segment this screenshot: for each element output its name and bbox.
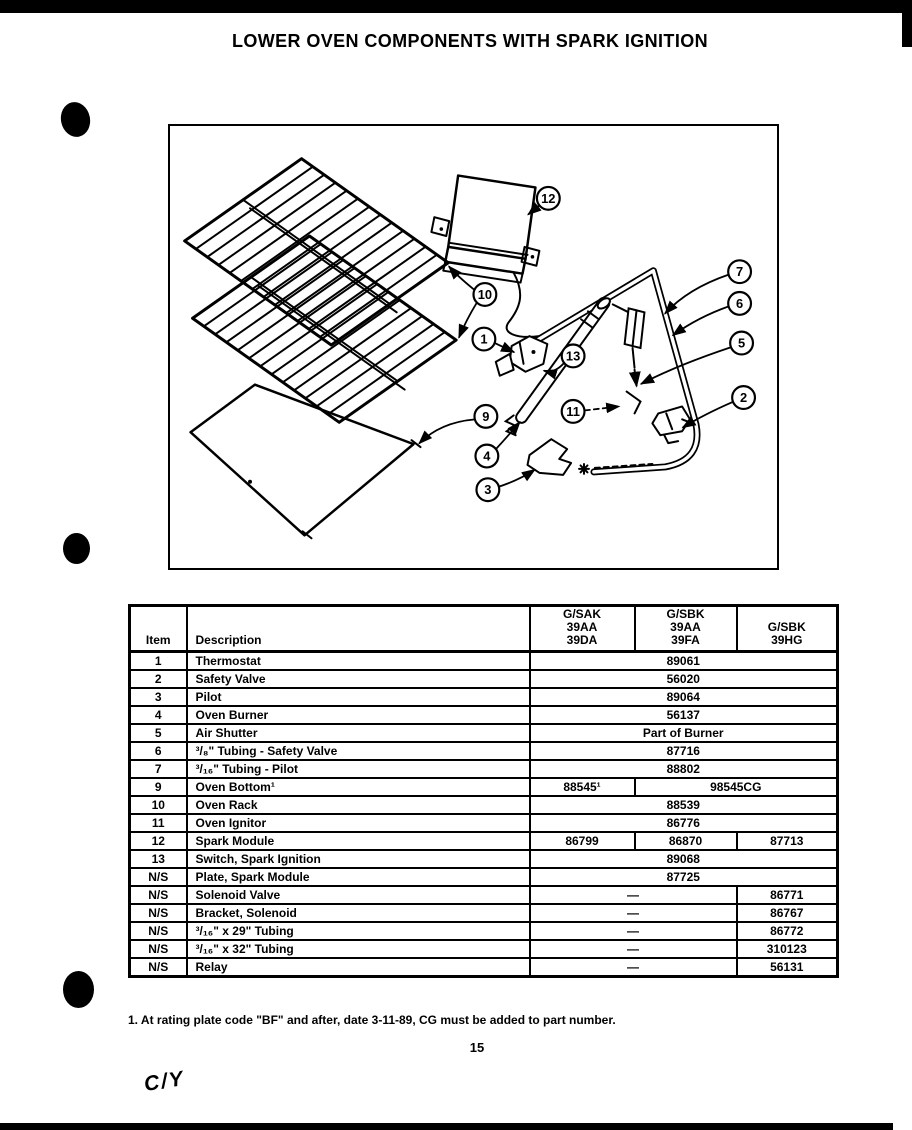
scan-edge-mark — [902, 11, 912, 47]
part-number-cell: 87713 — [737, 832, 838, 850]
table-row: N/S³/₁₆" x 29" Tubing—86772 — [130, 922, 838, 940]
table-row: N/SSolenoid Valve—86771 — [130, 886, 838, 904]
description-cell: Pilot — [187, 688, 530, 706]
description-cell: Spark Module — [187, 832, 530, 850]
punch-hole — [63, 533, 90, 564]
item-cell: N/S — [130, 958, 187, 977]
description-cell: ³/₁₆" Tubing - Pilot — [187, 760, 530, 778]
item-cell: 3 — [130, 688, 187, 706]
table-row: N/SPlate, Spark Module87725 — [130, 868, 838, 886]
table-row: 11Oven Ignitor86776 — [130, 814, 838, 832]
table-row: N/S³/₁₆" x 32" Tubing—310123 — [130, 940, 838, 958]
svg-text:1: 1 — [480, 332, 487, 347]
item-cell: 5 — [130, 724, 187, 742]
svg-text:3: 3 — [484, 482, 491, 497]
scan-top-bar — [0, 0, 912, 13]
description-cell: Relay — [187, 958, 530, 977]
item-cell: N/S — [130, 922, 187, 940]
part-number-cell: — — [530, 922, 737, 940]
item-cell: 9 — [130, 778, 187, 796]
svg-text:2: 2 — [740, 390, 747, 405]
item-cell: 10 — [130, 796, 187, 814]
part-number-cell: 87725 — [530, 868, 838, 886]
description-cell: Thermostat — [187, 652, 530, 671]
part-number-cell: 86799 — [530, 832, 635, 850]
callout-7: 7 — [728, 260, 751, 283]
svg-text:12: 12 — [541, 191, 555, 206]
part-number-cell: 310123 — [737, 940, 838, 958]
table-row: 1Thermostat89061 — [130, 652, 838, 671]
part-number-cell: 56020 — [530, 670, 838, 688]
description-cell: Safety Valve — [187, 670, 530, 688]
svg-text:10: 10 — [478, 287, 492, 302]
table-row: 10Oven Rack88539 — [130, 796, 838, 814]
table-row: N/SRelay—56131 — [130, 958, 838, 977]
svg-text:7: 7 — [736, 264, 743, 279]
item-cell: 4 — [130, 706, 187, 724]
page-title: LOWER OVEN COMPONENTS WITH SPARK IGNITIO… — [120, 31, 820, 52]
header-model-gsbk-39hg: G/SBK 39HG — [737, 606, 838, 652]
handwritten-mark: C/Y — [142, 1067, 186, 1097]
header-description: Description — [187, 606, 530, 652]
part-number-cell: 88545¹ — [530, 778, 635, 796]
ignition-wire — [507, 273, 540, 337]
oven-bottom-panel — [191, 385, 421, 539]
part-number-cell: 56131 — [737, 958, 838, 977]
part-number-cell: 86776 — [530, 814, 838, 832]
callout-3: 3 — [476, 478, 499, 501]
item-cell: 2 — [130, 670, 187, 688]
description-cell: Oven Bottom¹ — [187, 778, 530, 796]
item-cell: 11 — [130, 814, 187, 832]
item-cell: N/S — [130, 904, 187, 922]
description-cell: Solenoid Valve — [187, 886, 530, 904]
item-cell: 1 — [130, 652, 187, 671]
part-number-cell: 89064 — [530, 688, 838, 706]
part-number-cell: — — [530, 940, 737, 958]
table-row: 9Oven Bottom¹88545¹98545CG — [130, 778, 838, 796]
header-model-gsak-39aa-39da: G/SAK 39AA 39DA — [530, 606, 635, 652]
item-cell: 7 — [130, 760, 187, 778]
part-number-cell: 86870 — [635, 832, 737, 850]
part-number-cell: 89061 — [530, 652, 838, 671]
part-number-cell: 87716 — [530, 742, 838, 760]
description-cell: ³/₁₆" x 32" Tubing — [187, 940, 530, 958]
description-cell: Bracket, Solenoid — [187, 904, 530, 922]
part-number-cell: — — [530, 886, 737, 904]
svg-text:4: 4 — [483, 448, 491, 463]
punch-hole — [63, 971, 94, 1008]
svg-text:6: 6 — [736, 296, 743, 311]
description-cell: Oven Burner — [187, 706, 530, 724]
callout-1: 1 — [473, 328, 496, 351]
part-number-cell: Part of Burner — [530, 724, 838, 742]
spark-module — [431, 176, 539, 283]
part-number-cell: 86767 — [737, 904, 838, 922]
part-number-cell: 56137 — [530, 706, 838, 724]
part-number-cell: 89068 — [530, 850, 838, 868]
item-cell: 12 — [130, 832, 187, 850]
table-row: N/SBracket, Solenoid—86767 — [130, 904, 838, 922]
page-number: 15 — [120, 1040, 834, 1055]
oven-rack-lower — [193, 236, 457, 422]
thermostat-bracket — [496, 336, 548, 376]
callout-2: 2 — [732, 386, 755, 409]
item-cell: N/S — [130, 940, 187, 958]
table-row: 12Spark Module867998687087713 — [130, 832, 838, 850]
part-number-cell: 98545CG — [635, 778, 838, 796]
description-cell: Oven Rack — [187, 796, 530, 814]
callout-10: 10 — [474, 283, 497, 306]
scan-bottom-bar — [0, 1123, 893, 1130]
callout-11: 11 — [562, 400, 585, 423]
table-row: 3Pilot89064 — [130, 688, 838, 706]
table-row: 6³/₈" Tubing - Safety Valve87716 — [130, 742, 838, 760]
description-cell: Oven Ignitor — [187, 814, 530, 832]
callout-12: 12 — [537, 187, 560, 210]
part-number-cell: — — [530, 958, 737, 977]
description-cell: Plate, Spark Module — [187, 868, 530, 886]
svg-text:13: 13 — [566, 348, 580, 363]
exploded-parts-diagram: 12 10 7 6 5 2 1 13 9 11 4 3 — [170, 126, 777, 568]
description-cell: Switch, Spark Ignition — [187, 850, 530, 868]
svg-text:9: 9 — [482, 409, 489, 424]
part-number-cell: 88802 — [530, 760, 838, 778]
description-cell: Air Shutter — [187, 724, 530, 742]
part-number-cell: 86771 — [737, 886, 838, 904]
oven-ignitor-electrode — [613, 304, 645, 413]
header-model-gsbk-39aa-39fa: G/SBK 39AA 39FA — [635, 606, 737, 652]
oven-rack-upper — [185, 159, 449, 345]
description-cell: ³/₈" Tubing - Safety Valve — [187, 742, 530, 760]
item-cell: 13 — [130, 850, 187, 868]
part-number-cell: 88539 — [530, 796, 838, 814]
punch-hole — [58, 99, 94, 139]
part-number-cell: — — [530, 904, 737, 922]
table-row: 2Safety Valve56020 — [130, 670, 838, 688]
part-number-cell: 86772 — [737, 922, 838, 940]
header-item: Item — [130, 606, 187, 652]
item-cell: N/S — [130, 868, 187, 886]
callout-6: 6 — [728, 292, 751, 315]
callout-5: 5 — [730, 332, 753, 355]
description-cell: ³/₁₆" x 29" Tubing — [187, 922, 530, 940]
table-row: 4Oven Burner56137 — [130, 706, 838, 724]
footnote: 1. At rating plate code "BF" and after, … — [128, 1013, 838, 1027]
item-cell: 6 — [130, 742, 187, 760]
callout-9: 9 — [474, 405, 497, 428]
parts-table: Item Description G/SAK 39AA 39DA G/SBK 3… — [128, 604, 839, 978]
table-row: 13Switch, Spark Ignition89068 — [130, 850, 838, 868]
svg-text:5: 5 — [738, 335, 745, 350]
table-row: 5Air ShutterPart of Burner — [130, 724, 838, 742]
svg-text:11: 11 — [566, 404, 580, 419]
callout-13: 13 — [562, 345, 585, 368]
diagram-frame: 12 10 7 6 5 2 1 13 9 11 4 3 — [168, 124, 779, 570]
table-row: 7³/₁₆" Tubing - Pilot88802 — [130, 760, 838, 778]
callout-4: 4 — [475, 445, 498, 468]
manual-page: { "page": { "title": "LOWER OVEN COMPONE… — [0, 0, 912, 1130]
item-cell: N/S — [130, 886, 187, 904]
parts-table-header: Item Description G/SAK 39AA 39DA G/SBK 3… — [130, 606, 838, 652]
